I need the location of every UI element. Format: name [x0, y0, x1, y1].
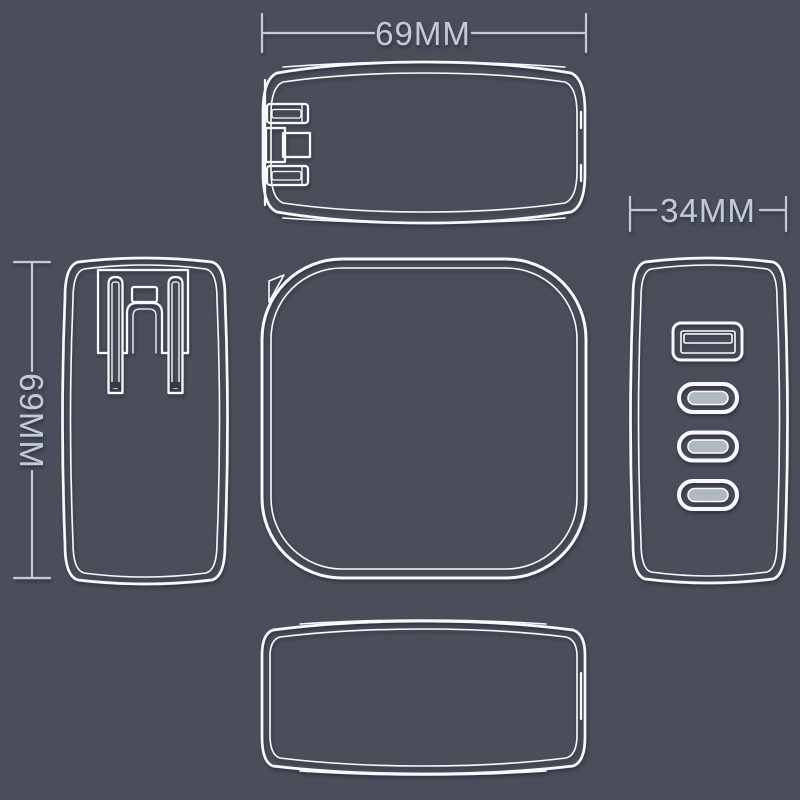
right-width-label: 34MM [660, 192, 756, 229]
prong-pivot-arch [127, 303, 162, 353]
usb-a-tongue [684, 334, 732, 343]
front-view-inner-line [271, 268, 577, 569]
usb-a-port-icon [673, 323, 742, 360]
folded-prong-bottom-inner [272, 172, 301, 181]
usb-c-3-tongue [688, 489, 728, 502]
bottom-view-inner-line [270, 629, 577, 766]
charger-dimension-diagram: 69MM 69MM 34MM [0, 0, 800, 800]
dimension-top-width: 69MM [262, 14, 586, 52]
dimension-right-width: 34MM [630, 192, 786, 231]
bottom-view-outline [262, 621, 585, 774]
prong-pivot-arch-inner [133, 309, 156, 353]
usb-c-port-2-icon [679, 433, 737, 461]
top-view-outline [263, 62, 585, 223]
dimension-left-height: 69MM [13, 262, 50, 578]
prong-right-hole [170, 382, 181, 388]
top-view-inner-line [271, 73, 577, 212]
usb-c-port-3-icon [679, 481, 737, 509]
side-view-right [631, 258, 788, 583]
prong-pivot-cap [132, 287, 157, 302]
left-view-inner-line [71, 265, 220, 577]
bottom-view-edge-bulge [300, 620, 546, 775]
top-view [263, 62, 585, 223]
folded-prongs-icon [266, 104, 310, 185]
front-view [262, 259, 586, 578]
left-height-label: 69MM [13, 373, 50, 469]
prong-left-outline [109, 277, 123, 393]
usb-c-2-tongue [688, 440, 728, 453]
front-view-outline [262, 259, 586, 578]
right-view-inner-line [639, 265, 780, 576]
prong-left-hole [110, 382, 121, 388]
top-view-edge-bulge [283, 62, 565, 223]
usb-c-1-tongue [688, 392, 728, 405]
prong-left-inner [112, 282, 119, 388]
side-view-left [63, 258, 228, 584]
prong-right-outline [169, 277, 183, 393]
plug-prong-right-icon [169, 277, 183, 393]
prong-pivot-block [283, 133, 310, 157]
prong-right-inner [172, 282, 179, 388]
right-view-outline [631, 258, 788, 583]
usb-c-port-1-icon [679, 384, 737, 412]
folded-prong-top-inner [272, 110, 301, 119]
bottom-view [262, 620, 585, 775]
plug-prong-left-icon [109, 277, 123, 393]
top-width-label: 69MM [375, 15, 471, 52]
left-view-outline [63, 258, 228, 584]
diagram-svg: 69MM 69MM 34MM [0, 0, 800, 800]
